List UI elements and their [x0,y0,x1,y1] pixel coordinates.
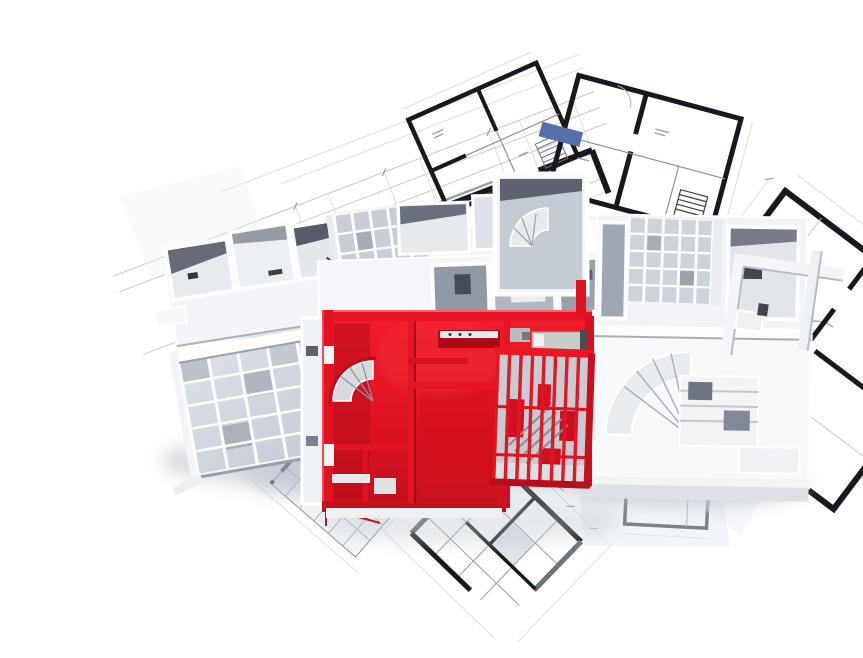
sofa [739,447,799,474]
plinth [326,508,502,518]
render-svg [40,16,863,642]
red-wall-sliver [576,280,586,316]
right-skylight-grid [627,217,724,306]
round-stair-room [495,174,587,294]
architectural-render [40,16,863,642]
red-pergola-grid [490,346,596,488]
bench [332,474,370,483]
right-tower-lower [586,326,811,502]
